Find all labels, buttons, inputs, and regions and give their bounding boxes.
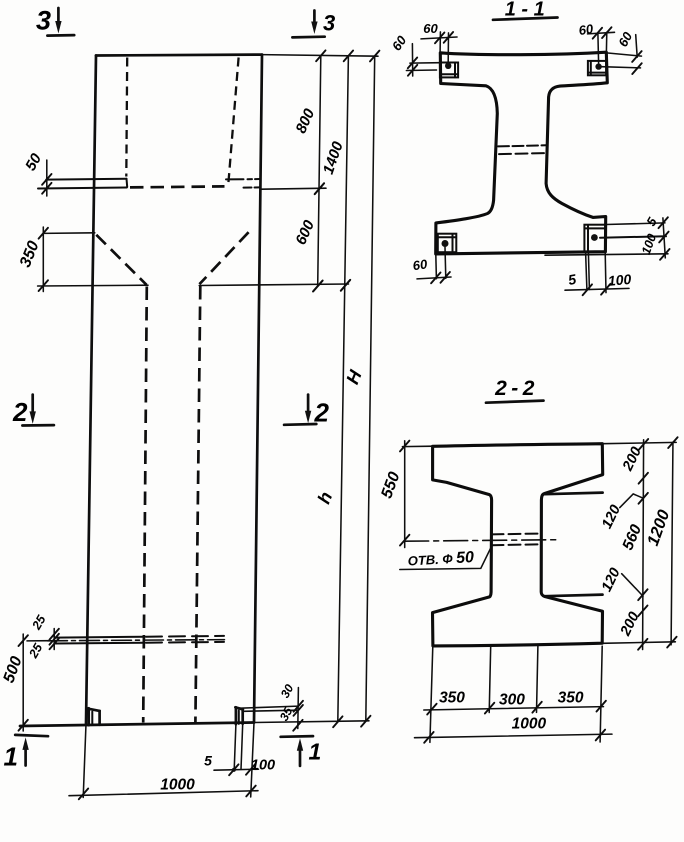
svg-text:1: 1 — [309, 739, 322, 765]
svg-text:1000: 1000 — [512, 716, 547, 733]
svg-text:h: h — [314, 489, 337, 507]
svg-text:600: 600 — [292, 217, 318, 247]
svg-text:60: 60 — [578, 21, 595, 38]
svg-text:3: 3 — [323, 11, 335, 36]
svg-text:30: 30 — [278, 682, 297, 701]
svg-text:350: 350 — [439, 690, 465, 707]
svg-text:350: 350 — [558, 690, 584, 707]
svg-text:3: 3 — [36, 6, 51, 36]
svg-text:5: 5 — [567, 271, 578, 288]
svg-text:500: 500 — [1, 654, 26, 685]
svg-text:25: 25 — [29, 612, 49, 633]
svg-text:5: 5 — [643, 214, 660, 228]
svg-text:2: 2 — [12, 397, 28, 427]
svg-text:60: 60 — [412, 256, 429, 273]
svg-text:550: 550 — [378, 470, 403, 501]
svg-text:800: 800 — [293, 106, 319, 136]
svg-text:60: 60 — [615, 29, 635, 49]
svg-text:60: 60 — [389, 32, 410, 53]
svg-text:200: 200 — [620, 445, 645, 475]
svg-text:50: 50 — [22, 150, 45, 174]
svg-text:350: 350 — [17, 239, 43, 270]
svg-text:120: 120 — [599, 566, 624, 595]
svg-text:5: 5 — [204, 753, 212, 769]
svg-text:1: 1 — [4, 742, 18, 772]
svg-text:H: H — [342, 367, 366, 387]
svg-text:ОТВ. Ф 50: ОТВ. Ф 50 — [407, 549, 474, 569]
svg-text:100: 100 — [607, 271, 632, 289]
svg-text:2-2: 2-2 — [494, 377, 539, 400]
svg-text:1200: 1200 — [644, 507, 674, 548]
svg-text:300: 300 — [499, 692, 525, 709]
svg-text:100: 100 — [251, 758, 275, 774]
svg-text:1000: 1000 — [160, 777, 195, 794]
svg-text:60: 60 — [423, 21, 438, 36]
svg-text:1400: 1400 — [320, 139, 347, 177]
svg-text:25: 25 — [26, 640, 46, 661]
svg-text:560: 560 — [619, 522, 645, 553]
